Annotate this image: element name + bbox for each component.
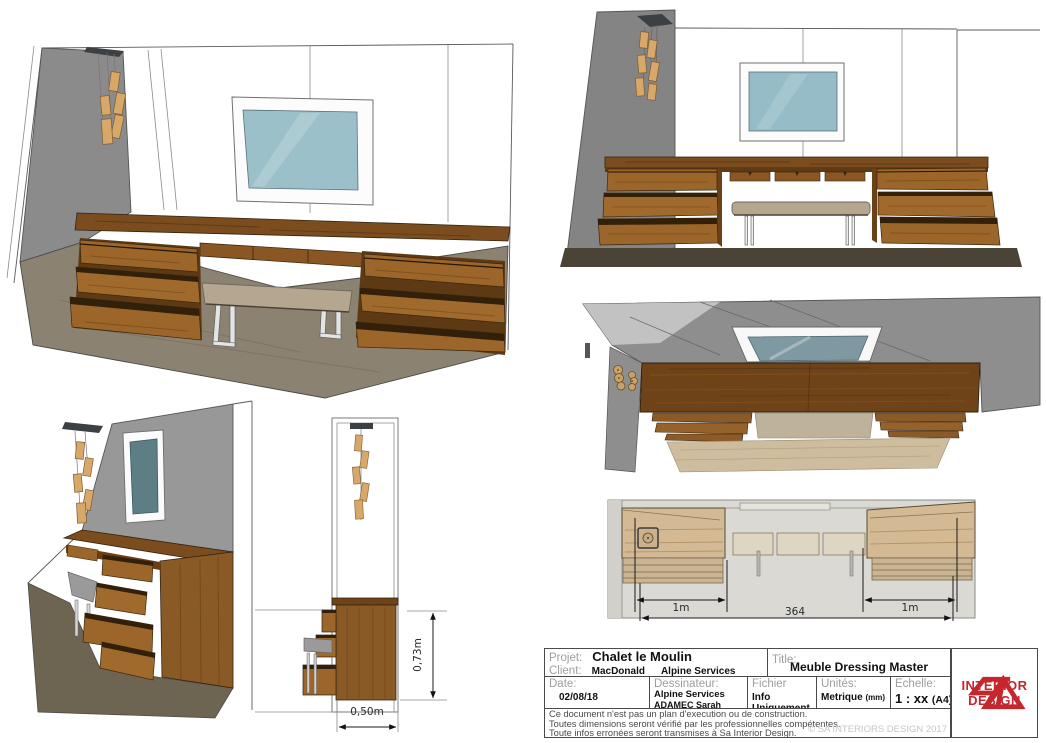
pendant-light <box>350 423 373 520</box>
date-value: 02/08/18 <box>549 690 645 703</box>
wall-edge-mark <box>585 343 590 358</box>
date-label: Date: <box>549 678 645 690</box>
copyright-text: © SA INTERIORS DESIGN 2017 <box>808 725 947 735</box>
unites-cell: Unités: Metrique (mm) <box>817 677 891 708</box>
center-drawers <box>730 172 865 181</box>
project-client-cell: Projet: Chalet le Moulin Client: MacDona… <box>545 649 768 676</box>
unites-value: Metrique <box>821 692 863 703</box>
drawing-title: Meuble Dressing Master <box>768 660 950 674</box>
drawing-title-cell: Title: Meuble Dressing Master <box>768 649 950 676</box>
sa-logo-icon <box>962 674 1028 712</box>
socket <box>638 528 658 548</box>
mirror <box>740 63 844 141</box>
unites-suffix: (mm) <box>865 693 885 702</box>
echelle-label: Echelle: <box>895 678 946 690</box>
projet-label: Projet: <box>549 652 582 665</box>
view-plan-dimensioned: 1m 1m 364 <box>595 488 1046 640</box>
floor <box>560 248 1022 267</box>
right-drawer-unit <box>356 251 505 355</box>
floor <box>667 438 950 472</box>
bench <box>732 202 870 245</box>
dessinateur-value-2: ADAMEC Sarah <box>654 700 743 708</box>
counter-top <box>75 213 510 241</box>
title-block: Projet: Chalet le Moulin Client: MacDona… <box>544 648 951 738</box>
view-perspective-front-left <box>0 0 545 435</box>
mirror-top <box>732 327 882 362</box>
left-drawer-unit <box>598 169 722 247</box>
right-drawer-unit <box>872 168 1000 245</box>
dim-plan-left-label: 1m <box>673 602 690 614</box>
projet-value: Chalet le Moulin <box>592 650 692 663</box>
unites-label: Unités: <box>821 678 886 690</box>
right-cabinet-plan <box>867 502 975 580</box>
fichier-label: Fichier <box>752 678 812 690</box>
dim-width-label: 0,50m <box>350 706 384 718</box>
dim-plan-right-label: 1m <box>902 602 919 614</box>
back-wall <box>675 28 1040 158</box>
dim-plan-total-label: 364 <box>785 606 805 618</box>
mirror <box>232 97 373 205</box>
title-block-row-meta: Date: 02/08/18 Dessinateur: Alpine Servi… <box>545 676 950 708</box>
bench-top <box>755 413 873 438</box>
echelle-value: 1 : xx <box>895 691 928 706</box>
view-plan-top-perspective <box>570 295 1046 480</box>
fichier-value: Info Uniquement <box>752 690 812 708</box>
left-cabinet-plan <box>622 508 725 583</box>
dimension-height: 0,73m <box>400 611 447 700</box>
echelle-suffix: (A4) <box>932 694 950 706</box>
center-drawers <box>200 243 362 267</box>
dim-height-label: 0,73m <box>412 638 424 672</box>
mirror <box>123 430 165 523</box>
echelle-cell: Echelle: 1 : xx (A4) <box>891 677 950 708</box>
title-block-row-project: Projet: Chalet le Moulin Client: MacDona… <box>545 649 950 676</box>
dessinateur-cell: Dessinateur: Alpine Services ADAMEC Sara… <box>650 677 748 708</box>
disclaimer-cell: Ce document n'est pas un plan d'executio… <box>545 708 950 735</box>
dessinateur-value-1: Alpine Services <box>654 690 743 700</box>
drawing-sheet: 0,73m 0,50m <box>0 0 1046 743</box>
left-drawer-unit <box>70 238 202 340</box>
counter-top <box>640 363 980 412</box>
view-perspective-side-left <box>0 398 262 743</box>
dimension-width: 0,50m <box>337 700 398 732</box>
date-cell: Date: 02/08/18 <box>545 677 650 708</box>
company-logo: INTERIOR DESIGN <box>951 648 1038 738</box>
left-drawers-top <box>652 413 752 442</box>
view-elevation-front <box>540 0 1046 300</box>
fichier-cell: Fichier Info Uniquement <box>748 677 817 708</box>
right-drawers-top <box>875 413 966 438</box>
view-elevation-side-dimensioned: 0,73m 0,50m <box>255 405 480 743</box>
